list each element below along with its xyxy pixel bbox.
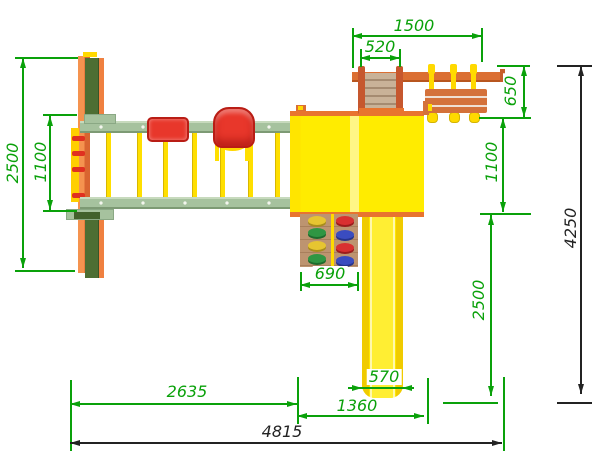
dim-line-swing-length: [70, 403, 297, 405]
climb-hold-red: [336, 216, 354, 225]
dim-arrow: [578, 384, 584, 394]
dim-label-frame-depth: 2500: [5, 141, 21, 186]
dim-arrow: [402, 385, 412, 391]
frame-leg-bottom-edge: [99, 217, 104, 278]
dim-arrow: [47, 116, 53, 126]
dim-label-beam-gap: 1100: [33, 140, 49, 185]
dim-ext: [15, 270, 75, 272]
dim-arrow: [297, 413, 307, 419]
dim-line-total-width: [70, 442, 502, 444]
ramp-bottom-rail: [359, 108, 404, 115]
playground-plan-drawing: 2500 1100 1500 520 650 1100 2500 690 263…: [0, 0, 600, 451]
dim-arrow: [287, 401, 297, 407]
ladder-rung-clip: [72, 167, 85, 172]
dim-arrow: [348, 282, 358, 288]
dim-arrow: [47, 200, 53, 210]
ladder-rung-clip: [72, 136, 85, 141]
dim-label-top-span: 1500: [392, 18, 437, 34]
dim-arrow: [472, 33, 482, 39]
frame-leg-top: [85, 58, 99, 115]
dim-arrow: [300, 282, 310, 288]
swing-rope: [137, 130, 142, 200]
dim-ext: [557, 402, 592, 404]
net-left-connector-dot: [428, 104, 432, 111]
climb-hold-yellow: [308, 241, 326, 250]
dim-arrow: [70, 440, 80, 446]
dim-arrow: [578, 66, 584, 76]
dim-label-total-width: 4815: [260, 424, 305, 440]
frame-leg-bottom: [85, 217, 99, 278]
dim-ext: [43, 210, 77, 212]
roof-ridge: [350, 116, 359, 212]
net-rod-foot: [449, 112, 460, 123]
dim-ext: [443, 402, 498, 404]
ramp-planks: [365, 73, 396, 113]
dim-arrow: [20, 258, 26, 268]
lower-swing-beam: [80, 197, 294, 209]
dim-label-tower-span: 1360: [335, 398, 380, 414]
dim-label-slide-width: 570: [367, 369, 402, 385]
dim-arrow: [20, 58, 26, 68]
climb-hold-green: [308, 254, 326, 263]
dim-arrow: [521, 107, 527, 117]
dim-label-tower-depth: 1100: [484, 140, 500, 185]
beam-bracket-bottom-leg: [74, 212, 100, 219]
roof-post-nub-dot: [298, 106, 303, 110]
climb-hold-yellow: [308, 216, 326, 225]
climb-hold-blue: [336, 230, 354, 239]
dim-ext: [557, 65, 592, 67]
dim-label-wall-width: 690: [313, 266, 348, 282]
dim-arrow: [414, 413, 424, 419]
swing-rope: [192, 130, 197, 200]
dim-label-slide-run: 2500: [471, 278, 487, 323]
dim-label-swing-length: 2635: [165, 384, 210, 400]
baby-swing-seat: [213, 107, 255, 148]
dim-arrow: [70, 401, 80, 407]
climb-hold-red: [336, 243, 354, 252]
dim-arrow: [488, 215, 494, 225]
ramp-post-right: [396, 66, 403, 114]
swing-rope: [275, 130, 280, 200]
dim-label-ramp-width: 520: [363, 39, 398, 55]
dim-line-total-depth: [580, 66, 582, 394]
frame-top-nub: [83, 52, 97, 57]
ramp-post-left: [358, 66, 365, 114]
climb-hold-green: [308, 228, 326, 237]
dim-line-slide-run: [490, 215, 492, 396]
beam-bracket-top: [84, 114, 116, 124]
dim-arrow: [352, 33, 362, 39]
dim-arrow: [521, 66, 527, 76]
ladder-rung-clip: [72, 151, 85, 156]
dim-arrow: [500, 118, 506, 128]
dim-ext: [503, 377, 505, 451]
dim-arrow: [492, 440, 502, 446]
dim-label-net-depth: 650: [503, 74, 519, 109]
dim-arrow: [488, 386, 494, 396]
dim-arrow: [352, 385, 362, 391]
frame-leg-top-edge: [99, 58, 104, 115]
dim-line-tower-depth: [502, 118, 504, 212]
net-slats: [425, 89, 487, 113]
dim-label-total-depth: 4250: [563, 206, 579, 251]
swing-rope: [106, 130, 111, 200]
dim-line-frame-depth: [22, 58, 24, 268]
flat-swing-seat: [147, 117, 189, 142]
dim-arrow: [500, 202, 506, 212]
dim-ext: [427, 378, 429, 424]
dim-line-tower-span: [297, 415, 424, 417]
